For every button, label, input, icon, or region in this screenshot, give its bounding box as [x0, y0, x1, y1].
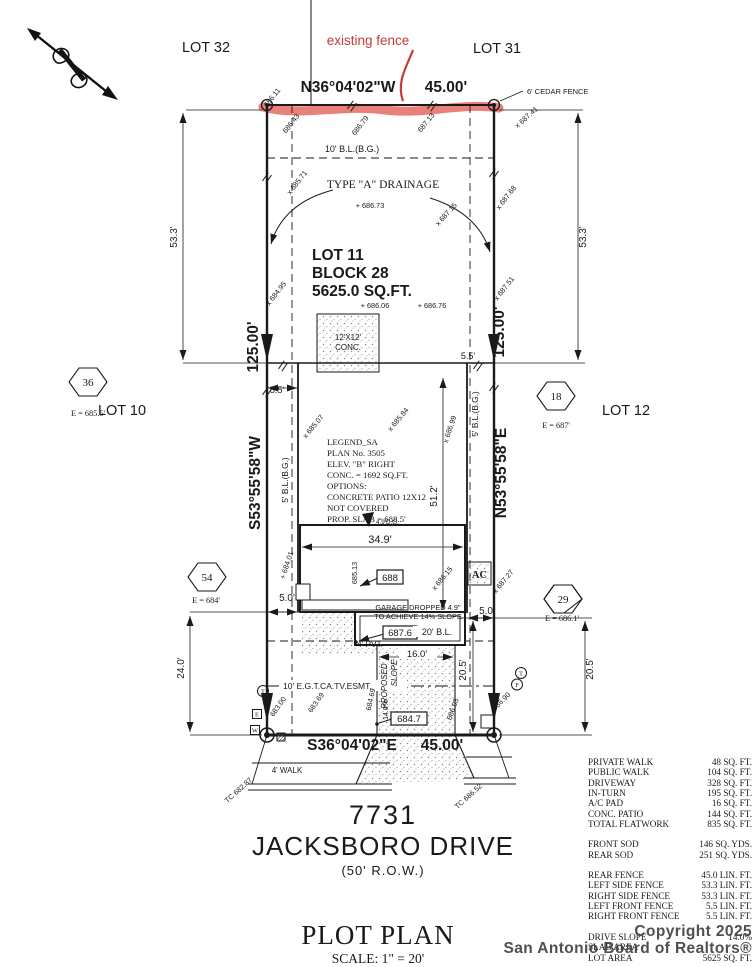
- left-bl-label: 5' B.L.(B.G.): [280, 457, 290, 503]
- rear-distance: 45.00': [425, 79, 467, 96]
- quantities-table: PRIVATE WALK48 SQ. FT. PUBLIC WALK104 SQ…: [588, 757, 752, 967]
- row-value: 48 SQ. FT.: [690, 757, 752, 767]
- drainage-type-label: TYPE "A" DRAINAGE: [327, 179, 439, 191]
- front-distance: 45.00': [421, 737, 463, 754]
- dim-53-3-right: 53.3': [578, 226, 589, 247]
- spot-elevation: x 687.41: [513, 104, 540, 129]
- legend-line-7: NOT COVERED: [327, 503, 389, 513]
- right-distance: 125.00': [491, 306, 508, 357]
- water-symbol: W: [252, 728, 259, 735]
- hex-54-number: 54: [202, 572, 214, 584]
- telephone-symbol-2: T: [519, 671, 523, 678]
- row-value: 16 SQ. FT.: [690, 798, 752, 808]
- row-label: RIGHT SIDE FENCE: [588, 891, 670, 901]
- front-bl-label: 20' B.L.: [422, 627, 452, 637]
- misc-group: DRIVE SLOPE14.0% SLAB AREA LOT AREA5625 …: [588, 932, 752, 963]
- table-row: DRIVE SLOPE14.0%: [588, 932, 752, 942]
- row-value: 251 SQ. YDS.: [690, 850, 752, 860]
- street-row-width: (50' R.O.W.): [233, 863, 533, 878]
- walk-label: 4' WALK: [272, 766, 303, 775]
- row-value: 144 SQ. FT.: [690, 809, 752, 819]
- row-label: RIGHT FRONT FENCE: [588, 911, 680, 921]
- row-label: A/C PAD: [588, 798, 623, 808]
- spot-elevation: 686.43: [281, 112, 302, 135]
- legend-line-4: CONC. = 1692 SQ.FT.: [327, 470, 408, 480]
- row-label: SLAB AREA: [588, 942, 638, 952]
- row-value: [690, 942, 752, 952]
- title-block: PLOT PLAN SCALE: 1" = 20': [228, 920, 528, 967]
- row-value: 53.3 LIN. FT.: [690, 880, 752, 890]
- row-label: FRONT SOD: [588, 839, 639, 849]
- table-row: DRIVEWAY328 SQ. FT.: [588, 778, 752, 788]
- row-value: 53.3 LIN. FT.: [690, 891, 752, 901]
- dim-5-5-right: 5.5': [461, 351, 476, 361]
- row-label: CONC. PATIO: [588, 809, 643, 819]
- row-value: 5.5 LIN. FT.: [690, 901, 752, 911]
- plan-scale: SCALE: 1" = 20': [228, 951, 528, 967]
- table-row: RIGHT SIDE FENCE53.3 LIN. FT.: [588, 891, 752, 901]
- plan-title: PLOT PLAN: [228, 920, 528, 951]
- ac-pad-label: AC: [472, 570, 487, 581]
- row-label: TOTAL FLATWORK: [588, 819, 669, 829]
- legend-line-3: ELEV. "B" RIGHT: [327, 459, 395, 469]
- existing-fence-note: existing fence: [327, 33, 410, 48]
- lot-31-label: LOT 31: [473, 41, 521, 57]
- row-value: 14.0%: [690, 932, 752, 942]
- dim-53-3-left: 53.3': [169, 226, 180, 247]
- row-value: 835 SQ. FT.: [690, 819, 752, 829]
- dim-20-5-inner: 20.5': [458, 659, 469, 680]
- dim-5-0-left: 5.0': [279, 593, 295, 604]
- table-row: TOTAL FLATWORK835 SQ. FT.: [588, 819, 752, 829]
- spot-elevation: 685.13: [350, 562, 359, 584]
- row-value: 104 SQ. FT.: [690, 767, 752, 777]
- boxed-elev-687-6: 687.6: [388, 628, 412, 639]
- table-row: REAR SOD251 SQ. YDS.: [588, 850, 752, 860]
- garage-note-2: TO ACHIEVE 14% SLOPE: [374, 612, 462, 621]
- plot-plan-sheet: LOT 32 LOT 31 LOT 10 LOT 12 existing fen…: [0, 0, 754, 967]
- dim-5-0-right: 5.0': [479, 606, 495, 617]
- legend-block: LEGEND_SA PLAN No. 3505 ELEV. "B" RIGHT …: [327, 437, 426, 524]
- table-row: FRONT SOD146 SQ. YDS.: [588, 839, 752, 849]
- telephone-symbol: T: [261, 689, 265, 696]
- spot-elevation: 686.79: [350, 114, 371, 137]
- left-bearing: S53°55'58"W: [247, 436, 264, 530]
- row-value: 5625 SQ. FT.: [690, 953, 752, 963]
- hex-36-number: 36: [83, 377, 95, 389]
- spot-elevation: x 685.84: [386, 406, 411, 433]
- front-bearing: S36°04'02"E: [307, 737, 397, 754]
- spot-elevation: x 686.99: [441, 415, 458, 444]
- table-row: PUBLIC WALK104 SQ. FT.: [588, 767, 752, 777]
- patio-label-1: 12'X12': [335, 333, 362, 342]
- north-arrow-icon: [27, 28, 118, 100]
- table-row: LEFT SIDE FENCE53.3 LIN. FT.: [588, 880, 752, 890]
- cedar-fence-note: 6' CEDAR FENCE: [527, 87, 588, 96]
- row-label: DRIVE SLOPE: [588, 932, 646, 942]
- spot-elevation: x 687.15: [433, 201, 458, 228]
- dim-51-2: 51.2': [429, 485, 440, 506]
- hex-54-elev: E = 684': [192, 596, 220, 605]
- rear-setback-label: 10' B.L.(B.G.): [325, 144, 379, 154]
- row-label: REAR FENCE: [588, 870, 644, 880]
- table-row: A/C PAD16 SQ. FT.: [588, 798, 752, 808]
- hex-29-number: 29: [558, 594, 570, 606]
- garage-note-1: GARAGE DROPPED 4.9": [375, 603, 461, 612]
- spot-elevation: + 686.73: [356, 201, 385, 210]
- row-label: LEFT FRONT FENCE: [588, 901, 673, 911]
- table-row: REAR FENCE45.0 LIN. FT.: [588, 870, 752, 880]
- legend-line-1: LEGEND_SA: [327, 437, 378, 447]
- subject-block: BLOCK 28: [312, 265, 389, 282]
- row-label: PRIVATE WALK: [588, 757, 653, 767]
- hex-18-number: 18: [551, 391, 563, 403]
- table-row: CONC. PATIO144 SQ. FT.: [588, 809, 752, 819]
- subject-lot: LOT 11: [312, 247, 364, 264]
- lot-10-label: LOT 10: [98, 403, 146, 419]
- spot-elevation: x 685.07: [301, 413, 326, 440]
- rear-bearing: N36°04'02"W: [301, 79, 396, 96]
- lot-32-label: LOT 32: [182, 40, 230, 56]
- row-label: LEFT SIDE FENCE: [588, 880, 664, 890]
- patio-label-2: CONC.: [335, 343, 361, 352]
- row-value: 195 SQ. FT.: [690, 788, 752, 798]
- lot-12-label: LOT 12: [602, 403, 650, 419]
- row-label: DRIVEWAY: [588, 778, 636, 788]
- hex-18-elev: E = 687': [542, 421, 570, 430]
- fence-group: REAR FENCE45.0 LIN. FT. LEFT SIDE FENCE5…: [588, 870, 752, 922]
- table-row: IN-TURN195 SQ. FT.: [588, 788, 752, 798]
- dim-24-0: 24.0': [176, 657, 187, 678]
- spot-elevation: + 684.01: [278, 550, 295, 580]
- spot-elevation: x 687.68: [494, 184, 518, 212]
- dim-34-9: 34.9': [368, 534, 392, 546]
- row-label: LOT AREA: [588, 953, 633, 963]
- slope-note-3: 14.0%: [383, 700, 390, 720]
- slope-note-2: SLOPE: [390, 659, 399, 686]
- right-bl-label: 5' B.L.(B.G.): [470, 391, 480, 437]
- street-number: 7731: [233, 800, 533, 831]
- spot-elevation: x 685.71: [285, 169, 309, 197]
- fiber-symbol: F: [515, 682, 519, 689]
- row-label: IN-TURN: [588, 788, 626, 798]
- electric-symbol: E: [255, 712, 259, 719]
- street-title: 7731 JACKSBORO DRIVE (50' R.O.W.): [233, 800, 533, 878]
- row-label: PUBLIC WALK: [588, 767, 649, 777]
- table-row: RIGHT FRONT FENCE5.5 LIN. FT.: [588, 911, 752, 921]
- hex-36-elev: E = 685.5': [71, 409, 106, 418]
- left-distance: 125.00': [245, 321, 262, 372]
- flatwork-group: PRIVATE WALK48 SQ. FT. PUBLIC WALK104 SQ…: [588, 757, 752, 829]
- row-value: 328 SQ. FT.: [690, 778, 752, 788]
- spot-elevation: 683.69: [306, 691, 326, 714]
- dg-note: 4.9'D.G.: [376, 519, 399, 526]
- dim-20-5-outer: 20.5': [585, 658, 596, 679]
- sod-group: FRONT SOD146 SQ. YDS. REAR SOD251 SQ. YD…: [588, 839, 752, 860]
- subject-area: 5625.0 SQ.FT.: [312, 283, 412, 300]
- row-label: REAR SOD: [588, 850, 633, 860]
- dim-16-0: 16.0': [407, 649, 427, 660]
- row-value: 5.5 LIN. FT.: [690, 911, 752, 921]
- row-value: 146 SQ. YDS.: [690, 839, 752, 849]
- hex-29-elev: E = 686.1': [545, 614, 580, 623]
- right-bearing: N53°55'58"E: [493, 428, 510, 519]
- legend-line-6: CONCRETE PATIO 12X12: [327, 492, 426, 502]
- table-row: SLAB AREA: [588, 942, 752, 952]
- spot-elevation: x 687.51: [492, 275, 516, 303]
- dim-5-5-left: 5.5': [270, 385, 285, 395]
- pvt-walk-label: 4' PVT.: [357, 639, 383, 649]
- table-row: LOT AREA5625 SQ. FT.: [588, 953, 752, 963]
- easement-label: 10' E.G.T.CA.TV.ESMT.: [283, 681, 372, 691]
- table-row: LEFT FRONT FENCE5.5 LIN. FT.: [588, 901, 752, 911]
- legend-line-2: PLAN No. 3505: [327, 448, 386, 458]
- boxed-elev-688: 688: [382, 573, 398, 584]
- table-row: PRIVATE WALK48 SQ. FT.: [588, 757, 752, 767]
- spot-elevation: 684.69: [364, 688, 377, 712]
- legend-line-5: OPTIONS:: [327, 481, 367, 491]
- spot-elevation: + 686.76: [418, 301, 447, 310]
- boxed-elev-684-7: 684.7: [397, 714, 421, 725]
- street-name: JACKSBORO DRIVE: [233, 831, 533, 862]
- row-value: 45.0 LIN. FT.: [690, 870, 752, 880]
- spot-elevation: + 686.06: [361, 301, 390, 310]
